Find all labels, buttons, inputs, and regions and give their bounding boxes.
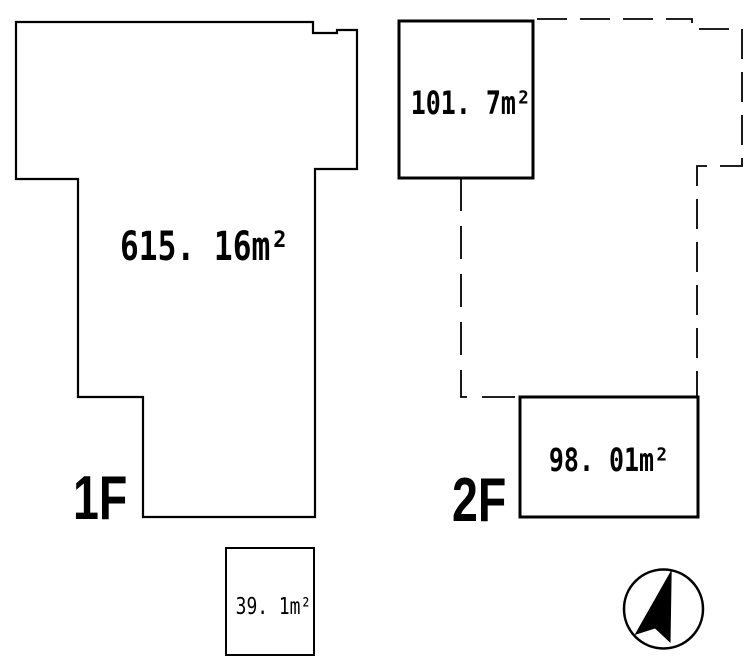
floor1-area-label: 615. 16m²	[120, 224, 276, 270]
floor2-upper-area-label: 101. 7m²	[411, 85, 516, 122]
floor2-title: 2F	[452, 470, 506, 532]
north-arrow-icon	[624, 570, 703, 649]
floor1-title: 1F	[73, 468, 127, 530]
floor1-annex-area-label: 39. 1m²	[236, 594, 305, 620]
floor2-footprint-dashed-right	[537, 19, 742, 397]
floorplan-canvas: 615. 16m² 101. 7m² 98. 01m² 39. 1m² 1F 2…	[0, 0, 751, 665]
floor2-lower-area-label: 98. 01m²	[540, 442, 679, 479]
floor2-footprint-dashed-left	[461, 178, 520, 397]
floorplan-drawing	[0, 0, 751, 665]
